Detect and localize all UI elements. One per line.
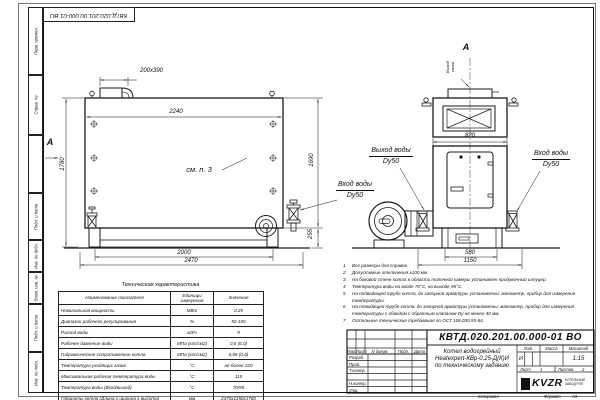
tb-row-nkontr: Н.контр. bbox=[349, 381, 367, 386]
row-name: Температура воды (Вход/выход) bbox=[59, 382, 171, 393]
note-text: Температура воды на входе 70°С, на выход… bbox=[352, 284, 590, 291]
row-units: МПа (кгс/см2) bbox=[171, 349, 214, 360]
row-value: 50-100 bbox=[214, 316, 264, 327]
margin-label: Подп. и дата bbox=[33, 315, 38, 341]
table-row: Номинальная мощностьМВт0,25 bbox=[59, 305, 264, 316]
water-outlet-dn: Dy50 bbox=[362, 157, 420, 167]
tb-col-data: Дата bbox=[412, 349, 427, 354]
tb-col-podp: Подп. bbox=[395, 349, 412, 354]
row-value: 115 bbox=[214, 371, 264, 382]
kvzr-logo-subtext: КОТЕЛЬНЫЙ ЗАВОД РЭП bbox=[565, 379, 593, 387]
note-number: 5 bbox=[343, 291, 352, 305]
see-note-label: см. п. 3 bbox=[176, 165, 222, 174]
tb-row-prov: Пров. bbox=[349, 362, 360, 367]
row-name: Номинальная мощность bbox=[59, 305, 171, 316]
gas-outlet-label: Выход газов bbox=[446, 52, 456, 82]
dim-height: 1780 bbox=[60, 151, 68, 177]
water-outlet-label: Выход воды Dy50 bbox=[362, 146, 420, 166]
note-number: 1 bbox=[343, 263, 352, 270]
row-name: Температура уходящих газов bbox=[59, 360, 171, 371]
row-value: не более 220 bbox=[214, 360, 264, 371]
row-name: Максимальная рабочая температура воды bbox=[59, 371, 171, 382]
top-stamp-number: КВТД.020.201.00.000-01 ВО bbox=[50, 12, 127, 18]
dim-front-base: 580 bbox=[456, 250, 484, 256]
kvzr-logo-text: KVZR bbox=[532, 377, 566, 389]
row-value: 2470х1150х1780 bbox=[214, 393, 264, 400]
note-number: 6 bbox=[343, 304, 352, 318]
gas-outlet-line2: газов bbox=[451, 52, 456, 82]
logo-sub-line2: ЗАВОД РЭП bbox=[565, 383, 593, 387]
row-value: 9 bbox=[214, 327, 264, 338]
margin-label: Взам. инв. № bbox=[33, 275, 38, 301]
tb-masshtab-label: Масштаб bbox=[563, 346, 594, 351]
tb-list-value: 1 bbox=[540, 367, 542, 372]
water-inlet-dn: Dy50 bbox=[522, 160, 580, 170]
water-inlet-line1: Вход воды bbox=[532, 149, 570, 160]
note-item: 1Все размеры для справок. bbox=[343, 263, 590, 270]
row-name: Гидравлическое сопротивление котла bbox=[59, 349, 171, 360]
table-row: Диапазон рабочего регулирования%50-100 bbox=[59, 316, 264, 327]
tb-doc-number: КВТД.020.201.00.000-01 ВО bbox=[427, 332, 594, 343]
note-item: 2Допустимые отклонения ±100 мм. bbox=[343, 270, 590, 277]
margin-box-sprav: Справ. № bbox=[28, 75, 43, 135]
row-units: % bbox=[171, 316, 214, 327]
tb-row-utv: Утв. bbox=[349, 388, 359, 393]
product-line3: по техническому заданию bbox=[427, 363, 517, 370]
top-stamp-box: КВТД.020.201.00.000-01 ВО bbox=[43, 7, 135, 22]
tech-col-value: Значение bbox=[214, 292, 264, 305]
tech-table: Наименование показателя Единицы измерени… bbox=[58, 291, 264, 400]
table-row: Габариты котла (Длина х ширина х высота)… bbox=[59, 393, 264, 400]
format-value: А3 bbox=[572, 394, 577, 399]
water-outlet-line1: Выход воды bbox=[369, 146, 412, 157]
table-row: Температура уходящих газов°Сне более 220 bbox=[59, 360, 264, 371]
row-name: Расход воды bbox=[59, 327, 171, 338]
table-row: Температура воды (Вход/выход)°С70/95 bbox=[59, 382, 264, 393]
tb-row-razrab: Разраб. bbox=[349, 355, 364, 360]
tb-massa-label: Масса bbox=[540, 346, 563, 351]
note-number: 4 bbox=[343, 284, 352, 291]
row-value: 0,06 (0,6) bbox=[214, 349, 264, 360]
note-item: 5На подводящей трубе котла, до запорной … bbox=[343, 291, 590, 305]
dim-body-length: 2240 bbox=[156, 109, 196, 115]
dim-front-width: 820 bbox=[458, 133, 482, 139]
dim-base-height: 255 bbox=[308, 223, 316, 245]
row-value: 0,25 bbox=[214, 305, 264, 316]
note-text: Все размеры для справок. bbox=[352, 263, 590, 270]
water-inlet-dn: Dy50 bbox=[328, 191, 382, 201]
dim-rear-height: 1690 bbox=[309, 147, 317, 173]
drawing-sheet: КВТД.020.201.00.000-01 ВО Перв. примен. … bbox=[0, 0, 600, 400]
margin-box-inv-dubl: Инв. № дубл. bbox=[28, 240, 43, 272]
tb-col-list: Лист bbox=[356, 349, 365, 354]
water-inlet-label-right: Вход воды Dy50 bbox=[522, 149, 580, 169]
kopiroval-label: Копировал bbox=[478, 394, 499, 399]
margin-label: Справ. № bbox=[33, 95, 38, 114]
margin-box-empty bbox=[28, 135, 43, 193]
margin-label: Инв. № дубл. bbox=[33, 243, 38, 269]
row-units: °С bbox=[171, 382, 214, 393]
water-inlet-label-left: Вход воды Dy50 bbox=[328, 180, 382, 200]
margin-box-inv-podl: Инв. № подл. bbox=[28, 352, 43, 393]
margin-box-podp-data-1: Подп. и дата bbox=[28, 193, 43, 240]
dim-legs-span: 2000 bbox=[169, 250, 199, 256]
note-number: 7 bbox=[343, 318, 352, 325]
note-text: Допустимые отклонения ±100 мм. bbox=[352, 270, 590, 277]
tech-table-header: Наименование показателя Единицы измерени… bbox=[59, 292, 264, 305]
note-item: 6На отводящей трубе котла, до запорной а… bbox=[343, 304, 590, 318]
tb-col-doc: N докум. bbox=[365, 349, 395, 354]
tech-table-title: Техническая характеристика bbox=[58, 282, 263, 288]
tb-listov-label: Листов bbox=[558, 367, 573, 372]
dim-flue: 200х390 bbox=[140, 68, 180, 74]
row-value: 70/95 bbox=[214, 382, 264, 393]
margin-box-vzam-inv: Взам. инв. № bbox=[28, 272, 43, 304]
margin-label: Перв. примен. bbox=[33, 27, 38, 55]
row-units: м3/ч bbox=[171, 327, 214, 338]
row-units: МВт bbox=[171, 305, 214, 316]
margin-label: Инв. № подл. bbox=[33, 360, 38, 386]
tb-list-label: Лист bbox=[520, 367, 531, 372]
tb-listov-value: 2 bbox=[582, 367, 584, 372]
margin-box-perv-primen: Перв. примен. bbox=[28, 7, 43, 75]
margin-label: Подп. и дата bbox=[33, 203, 38, 229]
note-number: 2 bbox=[343, 270, 352, 277]
note-text: На подводящей трубе котла, до запорной а… bbox=[352, 291, 590, 305]
table-row: Максимальная рабочая температура воды°С1… bbox=[59, 371, 264, 382]
note-text: На отводящей трубе котла, до запорной ар… bbox=[352, 304, 590, 318]
row-name: Диапазон рабочего регулирования bbox=[59, 316, 171, 327]
product-line1: Котел водогрейный bbox=[427, 349, 517, 356]
row-units: °С bbox=[171, 360, 214, 371]
notes-block: 1Все размеры для справок. 2Допустимые от… bbox=[343, 263, 590, 325]
row-value: 0,6 (6,0) bbox=[214, 338, 264, 349]
row-units: МПа (кгс/см2) bbox=[171, 338, 214, 349]
tb-col-izm: Изм. bbox=[347, 349, 356, 354]
kvzr-logo-icon bbox=[521, 378, 530, 390]
tb-lit-value: И bbox=[517, 356, 525, 362]
row-name: Рабочее давление воды bbox=[59, 338, 171, 349]
row-name: Габариты котла (Длина х ширина х высота) bbox=[59, 393, 171, 400]
row-units: °С bbox=[171, 371, 214, 382]
product-line2: Heatexpert-КВр-0,25-Д(К)И bbox=[427, 356, 517, 363]
tb-product-name: Котел водогрейный Heatexpert-КВр-0,25-Д(… bbox=[427, 349, 517, 371]
note-text: На боковой стене котла в области топочно… bbox=[352, 277, 590, 284]
margin-box-podp-data-2: Подп. и дата bbox=[28, 304, 43, 352]
tb-lit-label: Лит. bbox=[517, 346, 540, 351]
note-number: 3 bbox=[343, 277, 352, 284]
tb-masshtab-value: 1:15 bbox=[563, 356, 594, 362]
table-row: Расход водым3/ч9 bbox=[59, 327, 264, 338]
format-label: Формат bbox=[544, 394, 561, 399]
note-text: Остальные технические требования по ОСТ … bbox=[352, 318, 590, 325]
dim-total-length: 2470 bbox=[176, 258, 206, 264]
note-item: 4Температура воды на входе 70°С, на выхо… bbox=[343, 284, 590, 291]
row-units: мм bbox=[171, 393, 214, 400]
tech-col-units: Единицы измерения bbox=[171, 292, 214, 305]
water-inlet-line1: Вход воды bbox=[336, 180, 374, 191]
section-a-marker: А bbox=[43, 137, 57, 147]
table-row: Рабочее давление водыМПа (кгс/см2)0,6 (6… bbox=[59, 338, 264, 349]
table-row: Гидравлическое сопротивление котлаМПа (к… bbox=[59, 349, 264, 360]
note-item: 7Остальные технические требования по ОСТ… bbox=[343, 318, 590, 325]
tech-col-name: Наименование показателя bbox=[59, 292, 171, 305]
view-a-marker: А bbox=[459, 42, 473, 52]
note-item: 3На боковой стене котла в области топочн… bbox=[343, 277, 590, 284]
tb-row-tkontr: Т.контр. bbox=[349, 368, 366, 373]
